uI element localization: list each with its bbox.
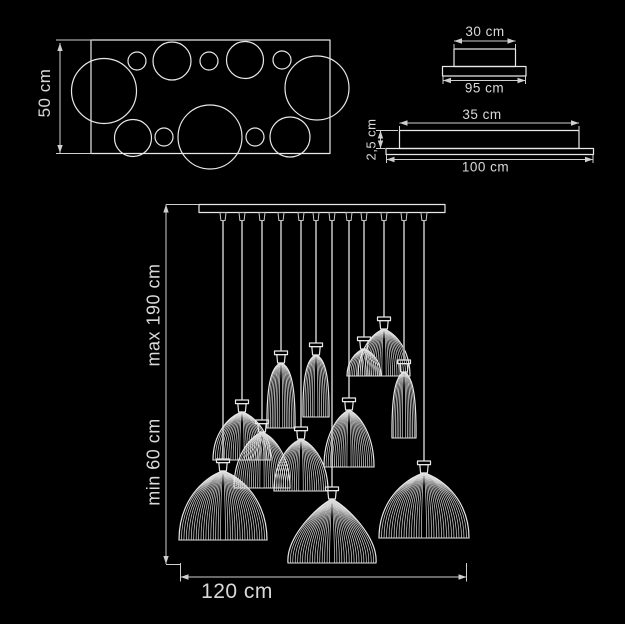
shade-outline	[288, 499, 376, 563]
canopy-side-base	[386, 149, 594, 155]
cord-hanger	[361, 213, 367, 221]
dimension-arrowhead	[454, 38, 462, 43]
decor-circle	[153, 42, 191, 80]
shade-rib	[347, 410, 351, 467]
shade-rib	[184, 471, 262, 540]
dimension-arrowhead	[163, 205, 168, 213]
shade-rib	[387, 473, 462, 538]
shade-rib	[314, 355, 318, 417]
dimension-arrowhead	[378, 141, 383, 149]
cord-hanger	[401, 213, 407, 221]
cord-hanger	[239, 213, 245, 221]
pendant-lamp	[303, 213, 329, 418]
cord-hanger	[259, 213, 265, 221]
cord-hanger	[298, 213, 304, 221]
decor-circle	[115, 120, 152, 157]
socket-neck	[297, 431, 305, 439]
shade-rib	[218, 471, 228, 540]
canopy-side-height-label: 2,5 cm	[364, 118, 379, 160]
shade-rib	[310, 499, 354, 563]
decor-circle	[128, 52, 146, 70]
pendant-lamp	[179, 213, 267, 541]
canopy-front-bottom-label: 95 cm	[465, 81, 504, 96]
dimension-arrowhead	[518, 78, 526, 83]
decor-circle	[270, 117, 310, 157]
shade-rib	[312, 355, 319, 417]
cord-hanger	[421, 213, 427, 221]
cord-hanger	[329, 213, 335, 221]
pendant-lamp	[347, 213, 381, 377]
pendant-lamp	[392, 213, 416, 439]
pendant-lamp	[267, 213, 295, 429]
dimension-arrowhead	[57, 145, 62, 153]
dimension-arrowhead	[585, 157, 593, 162]
dimension-arrowhead	[57, 43, 62, 51]
shade-rib	[211, 471, 235, 540]
shade-rib	[330, 410, 368, 467]
shade-rib	[367, 329, 402, 376]
decor-circle	[200, 52, 218, 70]
shade-rib	[299, 439, 304, 491]
shade-rib	[401, 372, 408, 438]
cord-hanger	[381, 213, 387, 221]
cord-hanger	[278, 213, 284, 221]
top-view-drawing	[72, 40, 350, 169]
dimension-arrowhead	[387, 157, 395, 162]
shade-rib	[384, 473, 464, 538]
dimension-arrowhead	[181, 574, 189, 579]
fixture-min-height-label: min 60 cm	[143, 418, 163, 506]
dimension-arrowhead	[163, 556, 168, 564]
fixture-width-label: 120 cm	[201, 580, 273, 603]
diagram-svg: 50 cm 30 cm 95 cm 35 cm 2,5 cm 100 cm ma…	[0, 0, 625, 624]
canopy-side-box	[400, 131, 580, 149]
dimension-arrowhead	[508, 38, 516, 43]
socket-neck	[312, 347, 320, 355]
shade-rib	[326, 410, 372, 467]
shade-rib	[412, 473, 437, 538]
socket-neck	[328, 491, 336, 499]
shade-rib	[277, 363, 284, 428]
top-view-frame	[91, 40, 330, 154]
canopy-side-top-label: 35 cm	[462, 107, 501, 122]
socket-neck	[219, 463, 227, 471]
decor-circle	[273, 51, 291, 69]
decor-circle	[178, 105, 242, 169]
dimension-arrowhead	[400, 120, 408, 125]
shade-rib	[279, 363, 283, 428]
shade-rib	[332, 410, 365, 467]
ceiling-bar	[199, 205, 445, 213]
socket-neck	[345, 402, 353, 410]
shade-rib	[283, 439, 319, 491]
decor-circle	[155, 128, 173, 146]
decor-circle	[285, 56, 349, 120]
canopy-base-plate	[443, 67, 527, 77]
canopy-front-drawing	[443, 49, 527, 76]
shade-rib	[186, 471, 259, 540]
socket-neck	[277, 355, 285, 363]
dimension-arrowhead	[378, 131, 383, 139]
socket-neck	[238, 404, 246, 412]
cord-hanger	[313, 213, 319, 221]
decor-circle	[227, 42, 264, 79]
decor-circle	[72, 59, 137, 124]
top-view-height-label: 50 cm	[35, 69, 54, 118]
canopy-side-bottom-label: 100 cm	[462, 160, 509, 175]
dimension-arrowhead	[571, 120, 579, 125]
shade-rib	[419, 473, 429, 538]
fixture-max-height-label: max 190 cm	[143, 263, 163, 366]
cord-hanger	[346, 213, 352, 221]
dimension-arrowhead	[443, 78, 451, 83]
canopy-side-drawing	[386, 131, 594, 155]
dimension-arrowhead	[459, 574, 467, 579]
lamp-dimension-diagram: 50 cm 30 cm 95 cm 35 cm 2,5 cm 100 cm ma…	[0, 0, 625, 624]
canopy-top-box	[454, 49, 516, 67]
socket-neck	[420, 465, 428, 473]
cord-hanger	[220, 213, 226, 221]
socket-neck	[380, 321, 388, 329]
shade-rib	[402, 372, 405, 438]
shade-rib	[382, 329, 386, 376]
canopy-front-top-label: 30 cm	[465, 24, 504, 39]
pendant-elevation-drawing	[179, 205, 469, 564]
decor-circle	[246, 128, 264, 146]
